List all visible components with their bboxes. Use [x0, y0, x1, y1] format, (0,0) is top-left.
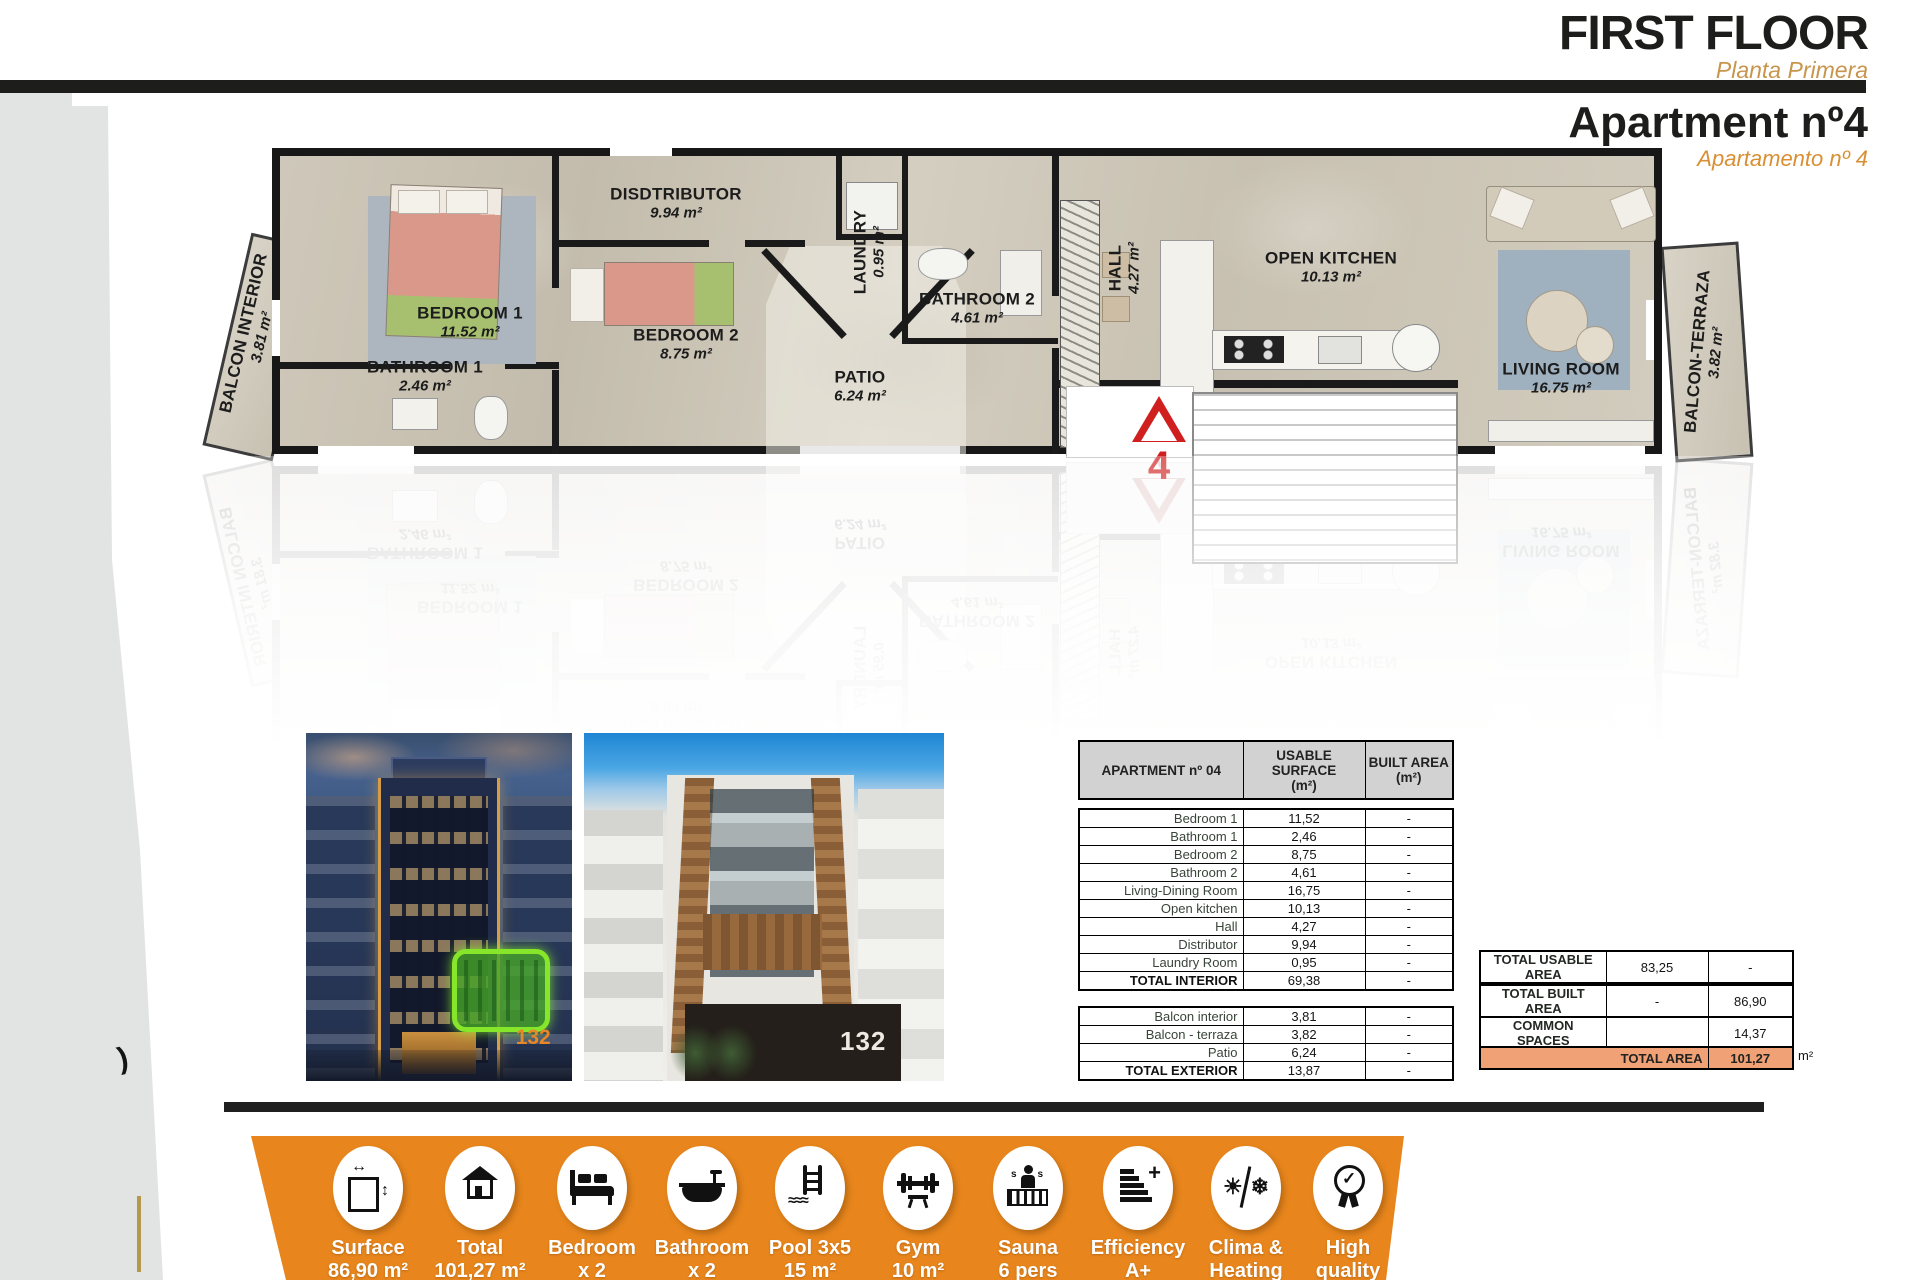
wall [1052, 348, 1059, 454]
table-row: Balcon interior3,81- [1079, 1007, 1453, 1026]
table-row: Bathroom 24,61- [1079, 864, 1453, 882]
quality-badge-icon [1325, 1164, 1371, 1212]
photo-building-night: 132 [306, 733, 572, 1081]
table-row-total: TOTAL INTERIOR69,38- [1079, 972, 1453, 991]
pillow [570, 268, 604, 322]
side-table [1576, 326, 1614, 364]
wall [745, 240, 805, 247]
wall [552, 156, 559, 288]
energy-efficiency-icon [1115, 1164, 1161, 1212]
pillow [446, 190, 488, 214]
gym-icon [895, 1164, 941, 1212]
bathtub-icon [679, 1164, 725, 1212]
boiler [1392, 324, 1440, 372]
exterior-surface-table: Balcon interior3,81- Balcon - terraza3,8… [1078, 1006, 1454, 1081]
door-opening [610, 148, 672, 156]
building-number: 132 [516, 1026, 551, 1050]
photo-building-day: 132 [584, 733, 944, 1081]
wall [1052, 156, 1059, 296]
table-row-total: TOTAL EXTERIOR13,87- [1079, 1062, 1453, 1081]
room-label-patio: PATIO 6.24 m² [834, 368, 886, 405]
wall [559, 240, 709, 247]
patio-glazing [800, 446, 960, 454]
table-row: Bedroom 111,52- [1079, 809, 1453, 828]
interior-surface-table: Bedroom 111,52- Bathroom 12,46- Bedroom … [1078, 808, 1454, 991]
feature-surface: Surface 86,90 m² [308, 1146, 428, 1280]
col-usable-surface: USABLE SURFACE (m²) [1243, 741, 1365, 799]
tv-bench [1488, 420, 1654, 442]
room-label-open-kitchen: OPEN KITCHEN 10.13 m² [1265, 249, 1397, 286]
surface-table-header: APARTMENT nº 04 USABLE SURFACE (m²) BUIL… [1078, 740, 1454, 800]
wall [552, 370, 559, 454]
pillow [398, 190, 440, 214]
apartment-subtitle: Apartamento nº 4 [1697, 146, 1868, 172]
pool-icon [787, 1164, 833, 1212]
common-spaces-row: COMMON SPACES14,37 [1479, 1016, 1794, 1050]
feature-sauna: Sauna 6 pers [968, 1146, 1088, 1280]
chair [1102, 296, 1130, 322]
room-label-laundry: LAUNDRY 0.95 m² [851, 210, 888, 295]
surface-icon [345, 1164, 391, 1212]
brochure-page: ) FIRST FLOOR Planta Primera Apartment n… [0, 0, 1920, 1280]
stove [1224, 336, 1284, 363]
room-label-bedroom-2: BEDROOM 2 8.75 m² [633, 326, 739, 363]
total-area-unit: m² [1798, 1048, 1813, 1063]
total-usable-area-row: TOTAL USABLE AREA83,25- [1479, 950, 1794, 984]
terrace-door [1646, 300, 1654, 360]
window [1495, 446, 1645, 454]
room-label-bedroom-1: BEDROOM 1 11.52 m² [417, 304, 523, 341]
apartment-title: Apartment nº4 [1568, 98, 1868, 148]
feature-gym: Gym 10 m² [858, 1146, 978, 1280]
feature-efficiency: Efficiency A+ [1078, 1146, 1198, 1280]
room-label-living-room: LIVING ROOM 16.75 m² [1502, 360, 1620, 397]
room-label-distributor: DISDTRIBUTOR 9.94 m² [610, 185, 742, 222]
bed-icon [569, 1164, 615, 1212]
table-row: Open kitchen10,13- [1079, 900, 1453, 918]
table-row: Living-Dining Room16,75- [1079, 882, 1453, 900]
total-area-row: TOTAL AREA101,27 [1479, 1046, 1794, 1070]
sauna-icon [1005, 1164, 1051, 1212]
table-row: Distributor9,94- [1079, 936, 1453, 954]
col-built-area: BUILT AREA (m²) [1365, 741, 1453, 799]
kitchen-sink [1318, 336, 1362, 364]
toilet [474, 396, 508, 440]
room-label-bathroom-2: BATHROOM 2 4.61 m² [919, 290, 1035, 327]
house-icon [457, 1164, 503, 1212]
total-built-area-row: TOTAL BUILT AREA-86,90 [1479, 984, 1794, 1018]
col-apartment: APARTMENT nº 04 [1079, 741, 1243, 799]
feature-bedroom: Bedroom x 2 [532, 1146, 652, 1280]
header-divider [0, 80, 1866, 93]
sink [392, 398, 438, 430]
wall [902, 338, 1058, 344]
page-title: FIRST FLOOR [1559, 6, 1868, 61]
feature-total: Total 101,27 m² [420, 1146, 540, 1280]
table-row: Hall4,27- [1079, 918, 1453, 936]
toilet [918, 248, 968, 280]
feature-high-quality: High quality [1288, 1146, 1408, 1280]
table-row: Bathroom 12,46- [1079, 828, 1453, 846]
table-row: Laundry Room0,95- [1079, 954, 1453, 972]
building-number: 132 [840, 1026, 886, 1057]
highlighted-apartment [452, 949, 550, 1032]
table-row: Balcon - terraza3,82- [1079, 1026, 1453, 1044]
table-row: Patio6,24- [1079, 1044, 1453, 1062]
bed-single [604, 262, 734, 326]
wall [902, 156, 908, 240]
bottom-divider [224, 1102, 1764, 1112]
table-row: Bedroom 28,75- [1079, 846, 1453, 864]
climate-icon [1223, 1164, 1269, 1212]
window [318, 446, 414, 454]
feature-bathroom: Bathroom x 2 [642, 1146, 762, 1280]
room-label-bathroom-1: BATHROOM 1 2.46 m² [367, 358, 483, 395]
room-label-hall: HALL 4.27 m² [1106, 242, 1143, 294]
wall [836, 156, 842, 240]
feature-pool: Pool 3x5 15 m² [750, 1146, 870, 1280]
